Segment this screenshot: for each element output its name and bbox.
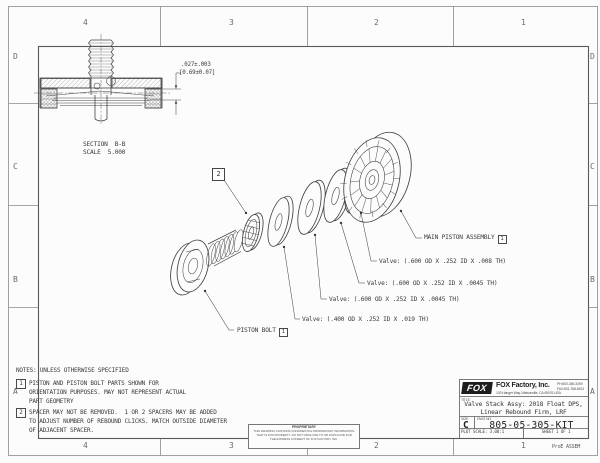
dwg-no-value: 805-05-305-KIT bbox=[475, 420, 588, 431]
plot-tag: ProE ASSEM bbox=[552, 444, 580, 450]
notes-header: NOTES: UNLESS OTHERWISE SPECIFIED bbox=[16, 367, 129, 375]
company-fax: FAX:831-768-6613 bbox=[557, 387, 584, 392]
zone-top-1: 1 bbox=[521, 18, 526, 27]
valve-0045b-callout: Valve: (.600 OD X .252 ID X .0045 TH) bbox=[329, 296, 459, 304]
main-piston-callout: MAIN PISTON ASSEMBLY1 bbox=[424, 234, 507, 244]
fox-logo: FOX bbox=[461, 382, 493, 394]
proprietary-line3: THE EXPRESS CONSENT OF FOX FACTORY, INC. bbox=[249, 438, 359, 442]
plot-scale: PLOT SCALE: 3.00:1 bbox=[461, 430, 504, 435]
zone-right-d: D bbox=[590, 52, 595, 61]
zone-bottom-1: 1 bbox=[521, 441, 526, 450]
piston-bolt-flag: 1 bbox=[279, 328, 288, 337]
piston-bolt-callout: PISTON BOLT1 bbox=[237, 327, 288, 337]
zone-bottom-3: 3 bbox=[229, 441, 234, 450]
zone-bottom-2: 2 bbox=[374, 441, 379, 450]
company-phone: PH:800-369-3399 bbox=[557, 382, 582, 387]
zone-top-2: 2 bbox=[374, 18, 379, 27]
main-piston-text: MAIN PISTON ASSEMBLY bbox=[424, 234, 495, 241]
zone-top-3: 3 bbox=[229, 18, 234, 27]
note1-flag: 1 bbox=[16, 379, 26, 389]
zone-right-a: A bbox=[590, 387, 595, 396]
balloon-2: 2 bbox=[212, 168, 225, 181]
zone-top-4: 4 bbox=[83, 18, 88, 27]
main-piston-flag: 1 bbox=[498, 235, 507, 244]
company-name: FOX Factory, Inc. bbox=[496, 382, 550, 389]
text-layer: 4 3 2 1 4 3 2 1 D C B A D C B A .027±.00… bbox=[0, 0, 600, 463]
company-address: 130 Hanger Way, Watsonville, CA 95076 US… bbox=[496, 391, 561, 396]
section-scale: SCALE 5.000 bbox=[83, 149, 125, 157]
proprietary-notice: PROPRIETARY THIS DRAWING CONTAINS CONFID… bbox=[248, 424, 360, 449]
zone-left-b: B bbox=[13, 275, 18, 284]
section-name: SECTION B-B bbox=[83, 141, 125, 149]
note2-line2: TO ADJUST NUMBER OF REBOUND CLICKS. MATC… bbox=[29, 418, 227, 426]
valve-008-callout: Valve: (.600 OD X .252 ID X .008 TH) bbox=[379, 258, 506, 266]
note1-line1: PISTON AND PISTON BOLT PARTS SHOWN FOR bbox=[29, 380, 159, 388]
note2-line1: SPACER MAY NOT BE REMOVED. 1 OR 2 SPACER… bbox=[29, 409, 217, 417]
zone-left-d: D bbox=[13, 52, 18, 61]
piston-bolt-text: PISTON BOLT bbox=[237, 327, 276, 334]
drawing-sheet: 4 3 2 1 4 3 2 1 D C B A D C B A .027±.00… bbox=[0, 0, 600, 463]
valve-019-callout: Valve: (.400 OD X .252 ID X .019 TH) bbox=[302, 316, 429, 324]
note2-line3: OF ADJACENT SPACER. bbox=[29, 427, 94, 435]
dimension-mm: [0.69±0.07] bbox=[179, 70, 215, 77]
valve-0045a-callout: Valve: (.600 OD X .252 ID X .0045 TH) bbox=[367, 280, 497, 288]
drawing-title-line2: Linear Rebound Firm, LRF bbox=[459, 409, 588, 416]
zone-left-c: C bbox=[13, 162, 18, 171]
zone-right-c: C bbox=[590, 162, 595, 171]
drawing-title-line1: Valve Stack Assy: 2018 Float DPS, bbox=[459, 401, 588, 408]
zone-right-b: B bbox=[590, 275, 595, 284]
dimension-inch: .027±.003 bbox=[181, 62, 211, 69]
note1-line3: PART GEOMETRY bbox=[29, 398, 73, 406]
sheet-number: SHEET 1 OF 1 bbox=[527, 430, 585, 435]
note2-flag: 2 bbox=[16, 408, 26, 418]
size-value: C bbox=[463, 420, 469, 431]
note1-line2: ORIENTATION PURPOSES. MAY NOT REPRESENT … bbox=[29, 389, 186, 397]
zone-bottom-4: 4 bbox=[83, 441, 88, 450]
